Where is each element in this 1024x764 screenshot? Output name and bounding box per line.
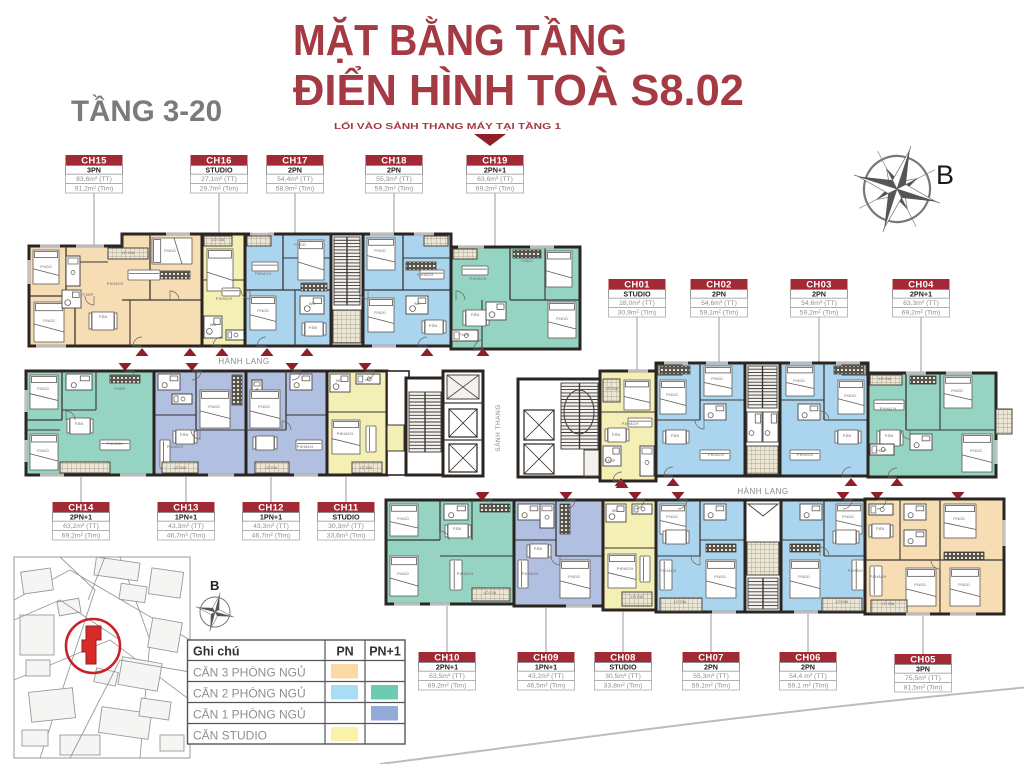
svg-text:30,9m² (Tim): 30,9m² (Tim)	[618, 310, 657, 317]
svg-text:59,1 m² (Tim): 59,1 m² (Tim)	[788, 683, 829, 690]
svg-text:P.KHÁCH: P.KHÁCH	[617, 567, 634, 571]
svg-text:HÀNH LANG: HÀNH LANG	[737, 487, 788, 496]
svg-text:81,5m² (Tim): 81,5m² (Tim)	[904, 685, 943, 692]
svg-text:P.ĂN: P.ĂN	[99, 315, 108, 319]
svg-text:P.KHÁCH: P.KHÁCH	[708, 453, 725, 457]
svg-text:69,2m² (Tim): 69,2m² (Tim)	[902, 310, 941, 317]
svg-text:LÔ GIA: LÔ GIA	[879, 376, 892, 381]
svg-text:CĂN 1 PHÒNG NGỦ: CĂN 1 PHÒNG NGỦ	[193, 707, 306, 722]
svg-text:WC: WC	[309, 302, 316, 306]
svg-text:59,1m² (Tim): 59,1m² (Tim)	[700, 310, 739, 317]
svg-text:P.KHÁCH: P.KHÁCH	[417, 273, 434, 277]
svg-text:P.NGỦ: P.NGỦ	[521, 258, 533, 263]
svg-text:P.NGỦ: P.NGỦ	[666, 514, 678, 519]
svg-text:ĐIỂN HÌNH TOÀ S8.02: ĐIỂN HÌNH TOÀ S8.02	[293, 64, 744, 115]
svg-text:P.ĂN: P.ĂN	[876, 527, 885, 531]
svg-text:63,6m² (TT): 63,6m² (TT)	[477, 176, 513, 183]
svg-text:69,2m² (Tim): 69,2m² (Tim)	[476, 186, 515, 193]
svg-text:2PN+1: 2PN+1	[436, 663, 458, 672]
svg-text:2PN: 2PN	[288, 166, 302, 175]
svg-text:46,7m² (Tim): 46,7m² (Tim)	[167, 533, 206, 540]
svg-text:LÔ GIA: LÔ GIA	[265, 465, 278, 470]
svg-text:LÔ GIA: LÔ GIA	[212, 237, 225, 242]
svg-text:P.KHÁCH: P.KHÁCH	[297, 445, 314, 449]
svg-text:PN+1: PN+1	[369, 645, 401, 659]
svg-text:33,6m² (Tim): 33,6m² (Tim)	[327, 533, 366, 540]
svg-text:P.NGỦ: P.NGỦ	[951, 388, 963, 393]
svg-text:LÔ GIA: LÔ GIA	[631, 594, 644, 599]
svg-text:P.KHÁCH: P.KHÁCH	[797, 453, 814, 457]
svg-text:2PN: 2PN	[812, 290, 826, 299]
svg-text:59,2m² (Tim): 59,2m² (Tim)	[375, 186, 414, 193]
svg-text:P.NGỦ: P.NGỦ	[914, 582, 926, 587]
svg-text:P.KHÁCH: P.KHÁCH	[457, 572, 474, 576]
svg-text:B: B	[210, 578, 219, 593]
svg-text:P.KĐP: P.KĐP	[115, 387, 126, 391]
svg-text:91,2m² (Tim): 91,2m² (Tim)	[75, 186, 114, 193]
svg-text:P.NGỦ: P.NGỦ	[953, 516, 965, 521]
svg-text:63,5m² (TT): 63,5m² (TT)	[429, 673, 465, 680]
svg-text:P.ĂN: P.ĂN	[843, 434, 852, 438]
svg-text:CĂN 3 PHÒNG NGỦ: CĂN 3 PHÒNG NGỦ	[193, 665, 306, 680]
svg-text:P.KHÁCH: P.KHÁCH	[167, 445, 184, 449]
svg-text:P.ĂN: P.ĂN	[180, 433, 189, 437]
svg-text:LỐI VÀO SẢNH THANG MÁY TẠI TẦN: LỐI VÀO SẢNH THANG MÁY TẠI TẦNG 1	[334, 121, 562, 131]
svg-text:CĂN STUDIO: CĂN STUDIO	[193, 728, 267, 743]
svg-text:P.NGỦ: P.NGỦ	[374, 310, 386, 315]
svg-text:P.ĂN: P.ĂN	[309, 326, 318, 330]
svg-text:WC: WC	[210, 323, 217, 327]
svg-text:54,4m² (TT): 54,4m² (TT)	[277, 176, 313, 183]
svg-text:Ghi chú: Ghi chú	[193, 645, 240, 659]
svg-text:2PN: 2PN	[387, 166, 401, 175]
svg-text:33,8m² (Tim): 33,8m² (Tim)	[604, 683, 643, 690]
svg-text:STUDIO: STUDIO	[332, 513, 360, 522]
svg-text:P.NGỦ: P.NGỦ	[844, 393, 856, 398]
svg-text:LÔ GIA: LÔ GIA	[882, 601, 895, 606]
svg-text:STUDIO: STUDIO	[609, 663, 637, 672]
svg-text:STUDIO: STUDIO	[205, 166, 233, 175]
svg-text:46,7m² (Tim): 46,7m² (Tim)	[252, 533, 291, 540]
svg-text:LÔ GIA: LÔ GIA	[836, 599, 849, 604]
svg-text:3PN: 3PN	[87, 166, 101, 175]
svg-text:P.NGỦ: P.NGỦ	[40, 264, 52, 269]
svg-text:P.NGỦ: P.NGỦ	[258, 404, 270, 409]
svg-text:43,3m² (TT): 43,3m² (TT)	[168, 523, 204, 530]
svg-text:63,2m² (TT): 63,2m² (TT)	[63, 523, 99, 530]
svg-text:P.NGỦ: P.NGỦ	[164, 248, 176, 253]
svg-text:P.NGỦ: P.NGỦ	[257, 308, 269, 313]
svg-text:P.NGỦ: P.NGỦ	[43, 318, 55, 323]
svg-text:P.KHÁCH: P.KHÁCH	[848, 569, 865, 573]
svg-text:54,6m² (TT): 54,6m² (TT)	[701, 300, 737, 307]
svg-text:P.NGỦ: P.NGỦ	[37, 386, 49, 391]
svg-text:WC: WC	[414, 302, 421, 306]
svg-text:30,5m² (TT): 30,5m² (TT)	[605, 673, 641, 680]
svg-text:P.NGỦ: P.NGỦ	[970, 448, 982, 453]
svg-text:55,3m² (TT): 55,3m² (TT)	[376, 176, 412, 183]
svg-text:2PN: 2PN	[801, 663, 815, 672]
svg-text:P.NGỦ: P.NGỦ	[397, 571, 409, 576]
svg-text:P.NGỦ: P.NGỦ	[294, 242, 306, 247]
svg-text:43,3m² (TT): 43,3m² (TT)	[253, 523, 289, 530]
svg-text:83,6m² (TT): 83,6m² (TT)	[76, 176, 112, 183]
svg-text:43,2m² (TT): 43,2m² (TT)	[528, 673, 564, 680]
svg-text:2PN+1: 2PN+1	[70, 513, 92, 522]
svg-text:P.KHÁCH: P.KHÁCH	[107, 282, 124, 286]
svg-text:P.ĂN: P.ĂN	[75, 422, 84, 426]
svg-text:SẢNH THANG: SẢNH THANG	[493, 404, 502, 452]
svg-text:P.KĐP: P.KĐP	[83, 293, 94, 297]
svg-text:46,5m² (Tim): 46,5m² (Tim)	[527, 683, 566, 690]
svg-text:P.ĂN: P.ĂN	[671, 434, 680, 438]
svg-text:P.NGỦ: P.NGỦ	[714, 574, 726, 579]
svg-text:P.KHÁCH: P.KHÁCH	[337, 432, 354, 436]
svg-text:1PN+1: 1PN+1	[260, 513, 282, 522]
svg-text:2PN: 2PN	[704, 663, 718, 672]
svg-text:P.NGỦ: P.NGỦ	[208, 404, 220, 409]
svg-text:P.KHÁCH: P.KHÁCH	[107, 442, 124, 446]
svg-text:59,1m² (Tim): 59,1m² (Tim)	[692, 683, 731, 690]
svg-text:55,3m² (TT): 55,3m² (TT)	[693, 673, 729, 680]
svg-text:P.NGỦ: P.NGỦ	[842, 514, 854, 519]
svg-text:P.NGỦ: P.NGỦ	[37, 448, 49, 453]
svg-text:LÔ GIA: LÔ GIA	[122, 250, 135, 255]
svg-text:2PN: 2PN	[712, 290, 726, 299]
svg-text:2PN+1: 2PN+1	[910, 290, 932, 299]
svg-text:LÔ GIA: LÔ GIA	[360, 465, 373, 470]
svg-text:P.ĂN: P.ĂN	[534, 547, 543, 551]
svg-text:WC: WC	[336, 379, 343, 383]
svg-text:P.KHÁCH: P.KHÁCH	[216, 297, 233, 301]
svg-text:54,6m² (TT): 54,6m² (TT)	[801, 300, 837, 307]
svg-text:P.NGỦ: P.NGỦ	[556, 316, 568, 321]
svg-text:P.ĂN: P.ĂN	[885, 434, 894, 438]
svg-text:63,3m² (TT): 63,3m² (TT)	[903, 300, 939, 307]
svg-text:P.NGỦ: P.NGỦ	[793, 378, 805, 383]
svg-text:P.KĐP: P.KĐP	[876, 449, 887, 453]
svg-text:P.ĂN: P.ĂN	[429, 324, 438, 328]
svg-text:3PN: 3PN	[916, 665, 930, 674]
svg-text:LÔ GIA: LÔ GIA	[484, 590, 497, 595]
svg-text:HÀNH LANG: HÀNH LANG	[218, 357, 269, 366]
svg-text:1PN+1: 1PN+1	[535, 663, 557, 672]
svg-text:69,2m² (Tim): 69,2m² (Tim)	[62, 533, 101, 540]
svg-text:CĂN 2 PHÒNG NGỦ: CĂN 2 PHÒNG NGỦ	[193, 686, 306, 701]
svg-text:28,0m² (TT): 28,0m² (TT)	[619, 300, 655, 307]
svg-text:P.KHÁCH: P.KHÁCH	[880, 407, 897, 411]
svg-text:27,1m² (TT): 27,1m² (TT)	[201, 176, 237, 183]
svg-text:WC: WC	[612, 509, 619, 513]
svg-text:P.NGỦ: P.NGỦ	[666, 392, 678, 397]
svg-text:59,2m² (Tim): 59,2m² (Tim)	[800, 310, 839, 317]
svg-text:P.KĐP: P.KĐP	[605, 459, 616, 463]
svg-text:LÔ GIA: LÔ GIA	[674, 599, 687, 604]
svg-text:75,5m² (TT): 75,5m² (TT)	[905, 675, 941, 682]
svg-text:P.KHÁCH: P.KHÁCH	[870, 575, 887, 579]
svg-text:P.KHÁCH: P.KHÁCH	[255, 272, 272, 276]
svg-text:P.KHÁCH: P.KHÁCH	[660, 569, 677, 573]
svg-text:LÔ GIA: LÔ GIA	[174, 465, 187, 470]
svg-text:LÔ GIA: LÔ GIA	[606, 386, 619, 391]
svg-text:PN: PN	[336, 645, 353, 659]
svg-text:69,2m² (Tim): 69,2m² (Tim)	[428, 683, 467, 690]
svg-text:P.NGỦ: P.NGỦ	[374, 248, 386, 253]
svg-text:P.NGỦ: P.NGỦ	[711, 376, 723, 381]
svg-text:P.ĂN: P.ĂN	[453, 527, 462, 531]
svg-text:P.NGỦ: P.NGỦ	[397, 516, 409, 521]
svg-text:P.KHÁCH: P.KHÁCH	[622, 422, 639, 426]
svg-text:B: B	[936, 160, 954, 190]
svg-text:P.KĐP: P.KĐP	[459, 333, 470, 337]
svg-text:STUDIO: STUDIO	[623, 290, 651, 299]
svg-text:P.ĂN: P.ĂN	[471, 313, 480, 317]
svg-text:P.KHÁCH: P.KHÁCH	[522, 572, 539, 576]
svg-text:P.NGỦ: P.NGỦ	[958, 582, 970, 587]
svg-text:29,7m² (Tim): 29,7m² (Tim)	[200, 186, 239, 193]
svg-text:58,9m² (Tim): 58,9m² (Tim)	[276, 186, 315, 193]
svg-text:P.KHÁCH: P.KHÁCH	[470, 277, 487, 281]
svg-text:30,3m² (TT): 30,3m² (TT)	[328, 523, 364, 530]
svg-text:P.ĂN: P.ĂN	[612, 433, 621, 437]
svg-text:TẦNG 3-20: TẦNG 3-20	[71, 94, 222, 128]
svg-text:2PN+1: 2PN+1	[484, 166, 506, 175]
svg-text:MẶT BẰNG TẦNG: MẶT BẰNG TẦNG	[293, 15, 627, 65]
svg-text:54,4 m² (TT): 54,4 m² (TT)	[789, 673, 827, 680]
svg-text:1PN+1: 1PN+1	[175, 513, 197, 522]
svg-text:P.NGỦ: P.NGỦ	[568, 574, 580, 579]
svg-text:P.NGỦ: P.NGỦ	[798, 574, 810, 579]
